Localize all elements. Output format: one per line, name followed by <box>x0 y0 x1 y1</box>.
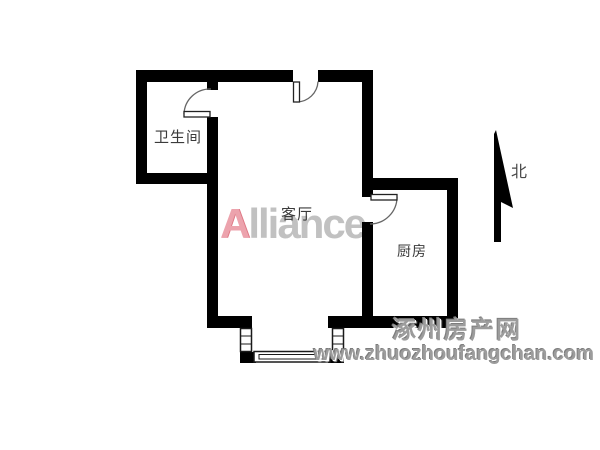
north-arrow-icon <box>494 130 513 242</box>
room-label-bathroom: 卫生间 <box>154 126 202 147</box>
room-label-living-room: 客厅 <box>281 203 313 224</box>
site-watermark-name: 涿州房产网 <box>314 319 594 343</box>
entrance-door <box>294 82 319 103</box>
floorplan-canvas <box>0 0 600 450</box>
site-watermark-url: www.zhuozhoufangchan.com <box>314 344 594 364</box>
bathroom-door <box>184 89 211 117</box>
room-label-kitchen: 厨房 <box>397 241 427 261</box>
kitchen-door <box>370 195 397 225</box>
site-watermark: 涿州房产网 www.zhuozhoufangchan.com <box>314 319 594 364</box>
north-label: 北 <box>511 158 527 182</box>
floorplan-image: Alliance <box>0 0 600 450</box>
